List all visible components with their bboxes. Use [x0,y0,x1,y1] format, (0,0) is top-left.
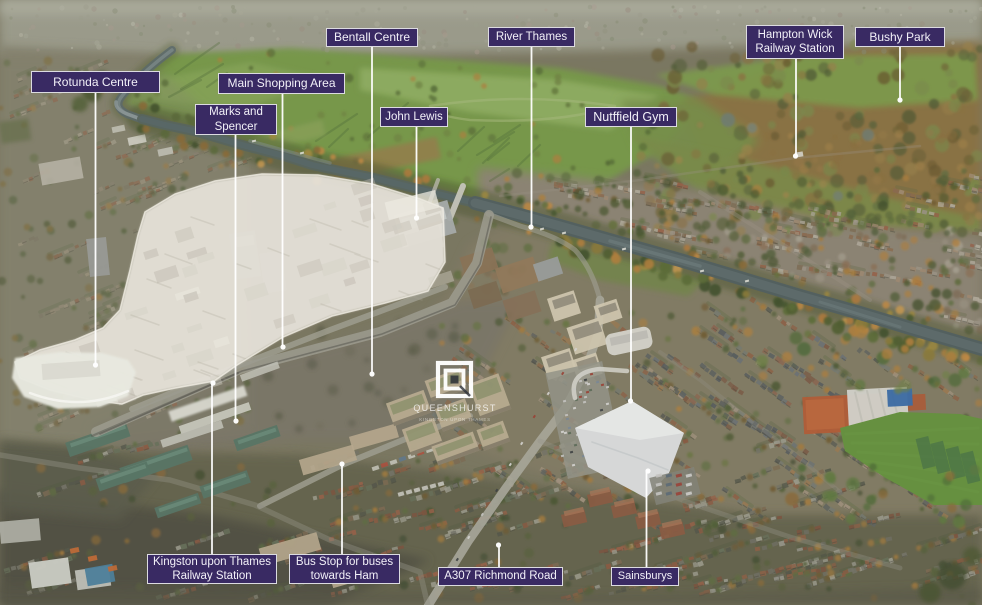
svg-text:QUEENSHURST: QUEENSHURST [413,403,496,413]
svg-text:KINGSTON UPON THAMES: KINGSTON UPON THAMES [419,417,491,422]
